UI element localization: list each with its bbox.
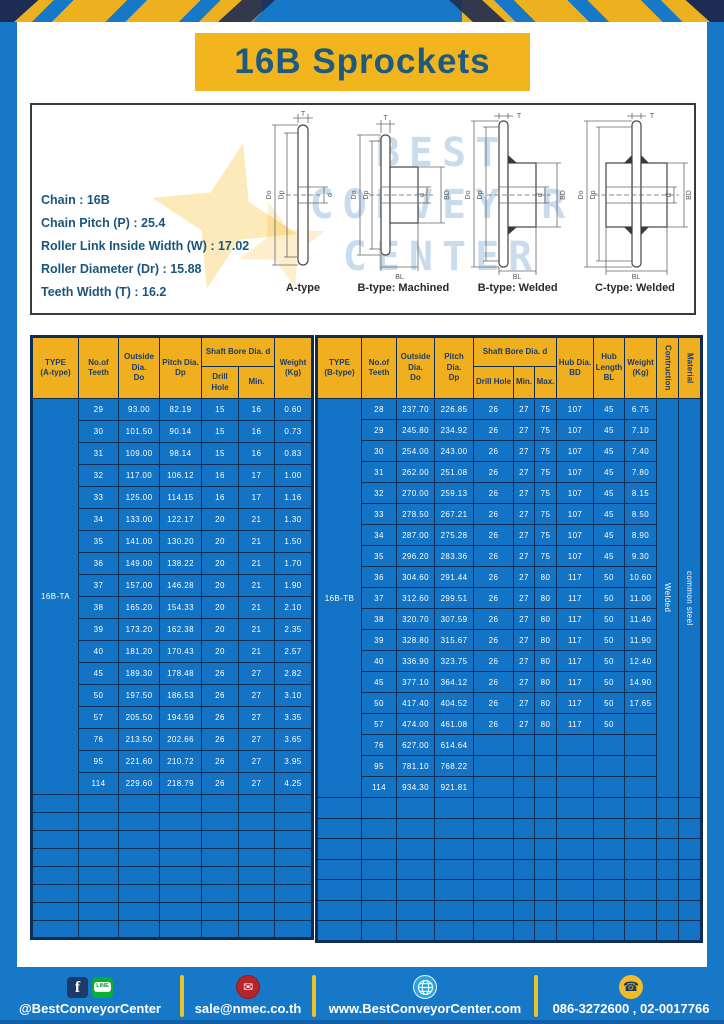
table-cell: 299.51 xyxy=(435,588,474,609)
table-cell: 27 xyxy=(514,462,535,483)
table-cell: 107 xyxy=(557,399,594,420)
empty-cell xyxy=(397,839,435,860)
empty-cell xyxy=(79,813,119,831)
table-cell: 245.80 xyxy=(397,420,435,441)
empty-cell xyxy=(594,900,625,921)
table-cell: 122.17 xyxy=(160,509,202,531)
svg-text:Dp: Dp xyxy=(363,190,370,199)
svg-text:Do: Do xyxy=(578,190,585,199)
top-stripe-bar xyxy=(0,0,724,22)
empty-cell xyxy=(625,900,657,921)
empty-cell xyxy=(474,921,514,942)
empty-cell xyxy=(160,813,202,831)
empty-cell xyxy=(594,818,625,839)
table-cell: 75 xyxy=(535,399,557,420)
table-cell: 1.00 xyxy=(275,465,313,487)
table-cell: 283.36 xyxy=(435,546,474,567)
table-cell: 21 xyxy=(239,575,275,597)
table-cell: 26 xyxy=(202,773,239,795)
table-cell: 197.50 xyxy=(119,685,160,707)
caption-b-type-machined: B-type: Machined xyxy=(357,282,449,294)
empty-cell xyxy=(474,859,514,880)
empty-cell xyxy=(79,921,119,939)
table-cell: 26 xyxy=(474,483,514,504)
svg-text:Do: Do xyxy=(465,190,472,199)
table-cell xyxy=(594,777,625,798)
empty-cell xyxy=(435,900,474,921)
table-cell: 32 xyxy=(79,465,119,487)
table-cell: 189.30 xyxy=(119,663,160,685)
empty-cell xyxy=(79,795,119,813)
empty-cell xyxy=(397,798,435,819)
table-cell: 40 xyxy=(79,641,119,663)
table-cell: 57 xyxy=(79,707,119,729)
table-cell: 20 xyxy=(202,553,239,575)
table-row: 37312.60299.512627801175011.00 xyxy=(317,588,702,609)
table-cell: 40 xyxy=(362,651,397,672)
empty-cell xyxy=(239,849,275,867)
table-cell: 107 xyxy=(557,546,594,567)
table-cell: 45 xyxy=(594,483,625,504)
empty-table-row xyxy=(317,798,702,819)
table-row: 16B-TA2993.0082.1915160.60 xyxy=(32,399,313,421)
table-cell: 33 xyxy=(79,487,119,509)
table-a-body: 16B-TA2993.0082.1915160.6030101.5090.141… xyxy=(32,399,313,939)
empty-cell xyxy=(474,839,514,860)
table-cell: 75 xyxy=(535,546,557,567)
empty-cell xyxy=(435,818,474,839)
table-row: 32270.00259.13262775107458.15 xyxy=(317,483,702,504)
table-cell: 27 xyxy=(514,546,535,567)
table-cell: 27 xyxy=(514,630,535,651)
empty-cell xyxy=(202,849,239,867)
empty-cell xyxy=(317,798,362,819)
table-b-body: 16B-TB28237.70226.85262775107456.75Welde… xyxy=(317,399,702,942)
table-cell: 80 xyxy=(535,609,557,630)
table-cell: 75 xyxy=(535,462,557,483)
table-cell: 221.60 xyxy=(119,751,160,773)
table-cell: 194.59 xyxy=(160,707,202,729)
table-cell: 11.90 xyxy=(625,630,657,651)
table-cell: 4.25 xyxy=(275,773,313,795)
table-cell: 146.28 xyxy=(160,575,202,597)
svg-text:Do: Do xyxy=(266,190,273,199)
table-cell: 50 xyxy=(594,609,625,630)
empty-cell xyxy=(397,818,435,839)
svg-text:T: T xyxy=(301,111,306,118)
empty-cell xyxy=(657,859,679,880)
empty-cell xyxy=(202,795,239,813)
empty-cell xyxy=(239,795,275,813)
empty-cell xyxy=(657,921,679,942)
table-cell: 107 xyxy=(557,525,594,546)
table-cell: 1.16 xyxy=(275,487,313,509)
table-cell: 117 xyxy=(557,672,594,693)
empty-table-row xyxy=(32,849,313,867)
table-cell: 27 xyxy=(239,685,275,707)
table-cell: 20 xyxy=(202,531,239,553)
type-cell: 16B-TB xyxy=(317,399,362,798)
svg-text:d: d xyxy=(666,193,673,197)
table-cell: 296.20 xyxy=(397,546,435,567)
table-cell: 205.50 xyxy=(119,707,160,729)
table-cell: 75 xyxy=(535,504,557,525)
table-cell: 27 xyxy=(514,672,535,693)
page: 16B Sprockets BEST CONVEYOR CENTER Chain… xyxy=(17,22,707,967)
empty-cell xyxy=(79,867,119,885)
col-header-hub-length: Hub Length BL xyxy=(594,337,625,399)
table-cell: 34 xyxy=(79,509,119,531)
table-cell: 138.22 xyxy=(160,553,202,575)
col-header-construction: Contruction xyxy=(657,337,679,399)
table-cell: 117.00 xyxy=(119,465,160,487)
table-cell: 149.00 xyxy=(119,553,160,575)
col-header-weight: Weight (Kg) xyxy=(625,337,657,399)
table-cell: 80 xyxy=(535,630,557,651)
empty-cell xyxy=(160,921,202,939)
table-row: 29245.80234.92262775107457.10 xyxy=(317,420,702,441)
empty-cell xyxy=(275,867,313,885)
empty-cell xyxy=(594,839,625,860)
table-cell: 11.00 xyxy=(625,588,657,609)
empty-cell xyxy=(474,798,514,819)
table-cell: 50 xyxy=(594,630,625,651)
table-cell: 27 xyxy=(514,399,535,420)
spec-roller-width: Roller Link Inside Width (W) : 17.02 xyxy=(41,235,249,258)
table-cell: 1.30 xyxy=(275,509,313,531)
table-cell: 32 xyxy=(362,483,397,504)
svg-text:BD: BD xyxy=(444,190,451,200)
table-cell: 117 xyxy=(557,609,594,630)
table-cell: 26 xyxy=(474,525,514,546)
empty-cell xyxy=(397,900,435,921)
table-cell: 165.20 xyxy=(119,597,160,619)
table-cell: 114 xyxy=(362,777,397,798)
table-cell: 2.57 xyxy=(275,641,313,663)
table-cell: 107 xyxy=(557,462,594,483)
table-cell: 45 xyxy=(79,663,119,685)
empty-table-row xyxy=(32,903,313,921)
caption-a-type: A-type xyxy=(286,282,320,294)
empty-cell xyxy=(317,859,362,880)
table-cell: 181.20 xyxy=(119,641,160,663)
empty-cell xyxy=(557,839,594,860)
table-row: 16B-TB28237.70226.85262775107456.75Welde… xyxy=(317,399,702,420)
table-cell: 202.66 xyxy=(160,729,202,751)
table-cell: 16 xyxy=(239,421,275,443)
page-title: 16B Sprockets xyxy=(234,42,490,82)
table-cell: 17.65 xyxy=(625,693,657,714)
table-cell: 27 xyxy=(514,420,535,441)
table-cell xyxy=(625,735,657,756)
table-cell: 29 xyxy=(362,420,397,441)
table-cell: 157.00 xyxy=(119,575,160,597)
table-cell: 243.00 xyxy=(435,441,474,462)
table-cell: 26 xyxy=(474,672,514,693)
table-row: 76627.00614.64 xyxy=(317,735,702,756)
table-cell: 117 xyxy=(557,714,594,735)
svg-text:BL: BL xyxy=(396,274,405,281)
col-header-hub-dia: Hub Dia. BD xyxy=(557,337,594,399)
spec-teeth-width: Teeth Width (T) : 16.2 xyxy=(41,281,249,304)
table-cell: 80 xyxy=(535,693,557,714)
empty-cell xyxy=(239,813,275,831)
table-cell: 34 xyxy=(362,525,397,546)
empty-cell xyxy=(202,831,239,849)
empty-cell xyxy=(202,921,239,939)
table-cell: 614.64 xyxy=(435,735,474,756)
empty-cell xyxy=(679,880,702,901)
table-cell: 20 xyxy=(202,597,239,619)
phone-numbers: 086-3272600 , 02-0017766 xyxy=(553,1001,710,1016)
table-cell: 106.12 xyxy=(160,465,202,487)
col-header-material: Material xyxy=(679,337,702,399)
empty-cell xyxy=(317,880,362,901)
table-cell: 275.28 xyxy=(435,525,474,546)
col-header-drill-hole: Drill Hole xyxy=(202,367,239,399)
type-cell: 16B-TA xyxy=(32,399,79,795)
table-cell: 2.10 xyxy=(275,597,313,619)
empty-cell xyxy=(535,859,557,880)
empty-cell xyxy=(594,859,625,880)
table-cell: 3.65 xyxy=(275,729,313,751)
svg-text:d: d xyxy=(327,193,334,197)
table-cell xyxy=(474,777,514,798)
table-cell: 178.48 xyxy=(160,663,202,685)
table-cell: 26 xyxy=(474,399,514,420)
empty-cell xyxy=(362,921,397,942)
table-cell: 186.53 xyxy=(160,685,202,707)
table-cell: 28 xyxy=(362,399,397,420)
table-cell: 768.22 xyxy=(435,756,474,777)
table-cell: 323.75 xyxy=(435,651,474,672)
empty-cell xyxy=(239,831,275,849)
col-header-teeth: No.of Teeth xyxy=(79,337,119,399)
empty-cell xyxy=(119,849,160,867)
empty-cell xyxy=(625,859,657,880)
table-cell: 26 xyxy=(474,420,514,441)
table-cell: 17 xyxy=(239,465,275,487)
table-cell: 27 xyxy=(239,663,275,685)
svg-text:T: T xyxy=(384,115,389,122)
table-cell: 2.35 xyxy=(275,619,313,641)
table-cell: 38 xyxy=(362,609,397,630)
table-cell: 0.60 xyxy=(275,399,313,421)
table-row: 114934.30921.81 xyxy=(317,777,702,798)
empty-cell xyxy=(514,798,535,819)
sprocket-table-a-type: TYPE (A-type) No.of Teeth Outside Dia. D… xyxy=(30,335,314,940)
table-cell: 307.59 xyxy=(435,609,474,630)
empty-cell xyxy=(79,885,119,903)
table-cell: 226.85 xyxy=(435,399,474,420)
empty-cell xyxy=(557,921,594,942)
table-cell: 2.82 xyxy=(275,663,313,685)
table-cell: 27 xyxy=(239,707,275,729)
empty-cell xyxy=(239,867,275,885)
table-cell: 21 xyxy=(239,597,275,619)
table-cell: 328.80 xyxy=(397,630,435,651)
table-cell: 461.08 xyxy=(435,714,474,735)
sprocket-table-b-type: TYPE (B-type) No.of Teeth Outside Dia. D… xyxy=(315,335,703,943)
table-cell: 45 xyxy=(594,462,625,483)
col-header-shaft-bore: Shaft Bore Dia. d xyxy=(202,337,275,367)
table-cell: 117 xyxy=(557,567,594,588)
empty-cell xyxy=(535,880,557,901)
table-row: 57474.00461.0826278011750 xyxy=(317,714,702,735)
table-cell: 114.15 xyxy=(160,487,202,509)
table-cell xyxy=(557,756,594,777)
empty-cell xyxy=(362,818,397,839)
table-cell: 30 xyxy=(362,441,397,462)
empty-cell xyxy=(594,798,625,819)
table-cell: 262.00 xyxy=(397,462,435,483)
table-cell: 921.81 xyxy=(435,777,474,798)
c-type-welded-diagram: T Do Dp xyxy=(576,109,694,281)
table-cell: 50 xyxy=(594,672,625,693)
table-row: 40336.90323.752627801175012.40 xyxy=(317,651,702,672)
empty-cell xyxy=(160,849,202,867)
table-cell: 26 xyxy=(474,567,514,588)
drawing-b-type-machined: T Do Dp d BD xyxy=(347,109,459,311)
table-cell: 315.67 xyxy=(435,630,474,651)
empty-table-row xyxy=(317,900,702,921)
table-cell: 21 xyxy=(239,641,275,663)
table-cell: 31 xyxy=(79,443,119,465)
phone-icon: ☎ xyxy=(619,975,643,999)
empty-table-row xyxy=(32,867,313,885)
col-header-type: TYPE (B-type) xyxy=(317,337,362,399)
empty-cell xyxy=(275,831,313,849)
col-header-outside-dia: Outside Dia. Do xyxy=(397,337,435,399)
svg-text:BD: BD xyxy=(686,190,693,200)
table-cell xyxy=(557,777,594,798)
table-cell: 364.12 xyxy=(435,672,474,693)
table-cell: 39 xyxy=(362,630,397,651)
svg-text:Dp: Dp xyxy=(477,190,484,199)
table-cell: 45 xyxy=(362,672,397,693)
table-cell: 27 xyxy=(514,609,535,630)
table-cell: 50 xyxy=(594,588,625,609)
table-cell: 27 xyxy=(239,751,275,773)
a-type-diagram: T d Do Dp xyxy=(260,109,346,281)
table-cell: 170.43 xyxy=(160,641,202,663)
empty-cell xyxy=(317,900,362,921)
table-cell: 57 xyxy=(362,714,397,735)
table-cell: 27 xyxy=(514,504,535,525)
empty-cell xyxy=(557,880,594,901)
table-cell: 12.40 xyxy=(625,651,657,672)
empty-cell xyxy=(625,818,657,839)
empty-cell xyxy=(657,798,679,819)
empty-cell xyxy=(557,798,594,819)
empty-cell xyxy=(32,867,79,885)
table-cell: 26 xyxy=(474,462,514,483)
empty-cell xyxy=(557,818,594,839)
table-cell: 101.50 xyxy=(119,421,160,443)
table-row: 45377.10364.122627801175014.90 xyxy=(317,672,702,693)
table-cell: 33 xyxy=(362,504,397,525)
footer-social-section: f LINE @BestConveyorCenter xyxy=(0,975,180,1016)
empty-cell xyxy=(535,921,557,942)
table-cell: 125.00 xyxy=(119,487,160,509)
empty-cell xyxy=(160,831,202,849)
col-header-teeth: No.of Teeth xyxy=(362,337,397,399)
empty-cell xyxy=(317,921,362,942)
table-cell: 21 xyxy=(239,531,275,553)
table-cell: 117 xyxy=(557,651,594,672)
table-cell: 254.00 xyxy=(397,441,435,462)
svg-text:BL: BL xyxy=(632,274,641,281)
table-cell: 162.38 xyxy=(160,619,202,641)
table-cell: 30 xyxy=(79,421,119,443)
empty-table-row xyxy=(32,831,313,849)
table-cell xyxy=(514,756,535,777)
table-cell xyxy=(514,777,535,798)
table-cell: 237.70 xyxy=(397,399,435,420)
empty-cell xyxy=(362,839,397,860)
empty-cell xyxy=(657,818,679,839)
empty-cell xyxy=(397,859,435,880)
empty-cell xyxy=(514,900,535,921)
empty-cell xyxy=(679,818,702,839)
footer-social-icons: f LINE xyxy=(67,975,113,999)
empty-cell xyxy=(679,921,702,942)
table-cell: 20 xyxy=(202,641,239,663)
empty-table-row xyxy=(317,921,702,942)
empty-cell xyxy=(32,795,79,813)
table-cell: 107 xyxy=(557,504,594,525)
empty-cell xyxy=(397,921,435,942)
table-cell: 29 xyxy=(79,399,119,421)
table-cell xyxy=(625,756,657,777)
table-cell: 45 xyxy=(594,546,625,567)
table-cell: 117 xyxy=(557,693,594,714)
table-cell: 8.90 xyxy=(625,525,657,546)
table-cell: 26 xyxy=(474,504,514,525)
table-cell: 278.50 xyxy=(397,504,435,525)
empty-cell xyxy=(657,900,679,921)
empty-cell xyxy=(435,880,474,901)
empty-cell xyxy=(160,867,202,885)
table-cell: 20 xyxy=(202,619,239,641)
empty-cell xyxy=(119,885,160,903)
table-cell: 80 xyxy=(535,714,557,735)
table-cell: 27 xyxy=(514,588,535,609)
svg-text:BD: BD xyxy=(560,190,567,200)
table-cell: 27 xyxy=(239,773,275,795)
table-cell: 304.60 xyxy=(397,567,435,588)
table-cell: 270.00 xyxy=(397,483,435,504)
table-cell: 781.10 xyxy=(397,756,435,777)
table-cell: 26 xyxy=(474,588,514,609)
table-cell: 14.90 xyxy=(625,672,657,693)
table-cell xyxy=(535,735,557,756)
col-header-type: TYPE (A-type) xyxy=(32,337,79,399)
line-icon-label: LINE xyxy=(94,982,111,992)
empty-cell xyxy=(119,921,160,939)
table-cell: 9.30 xyxy=(625,546,657,567)
table-cell: 16 xyxy=(239,399,275,421)
table-cell: 114 xyxy=(79,773,119,795)
empty-cell xyxy=(535,818,557,839)
empty-table-row xyxy=(317,818,702,839)
empty-cell xyxy=(160,885,202,903)
empty-cell xyxy=(317,839,362,860)
empty-cell xyxy=(474,900,514,921)
spec-chain: Chain : 16B xyxy=(41,189,249,212)
table-cell: 26 xyxy=(474,693,514,714)
mail-icon: ✉ xyxy=(236,975,260,999)
